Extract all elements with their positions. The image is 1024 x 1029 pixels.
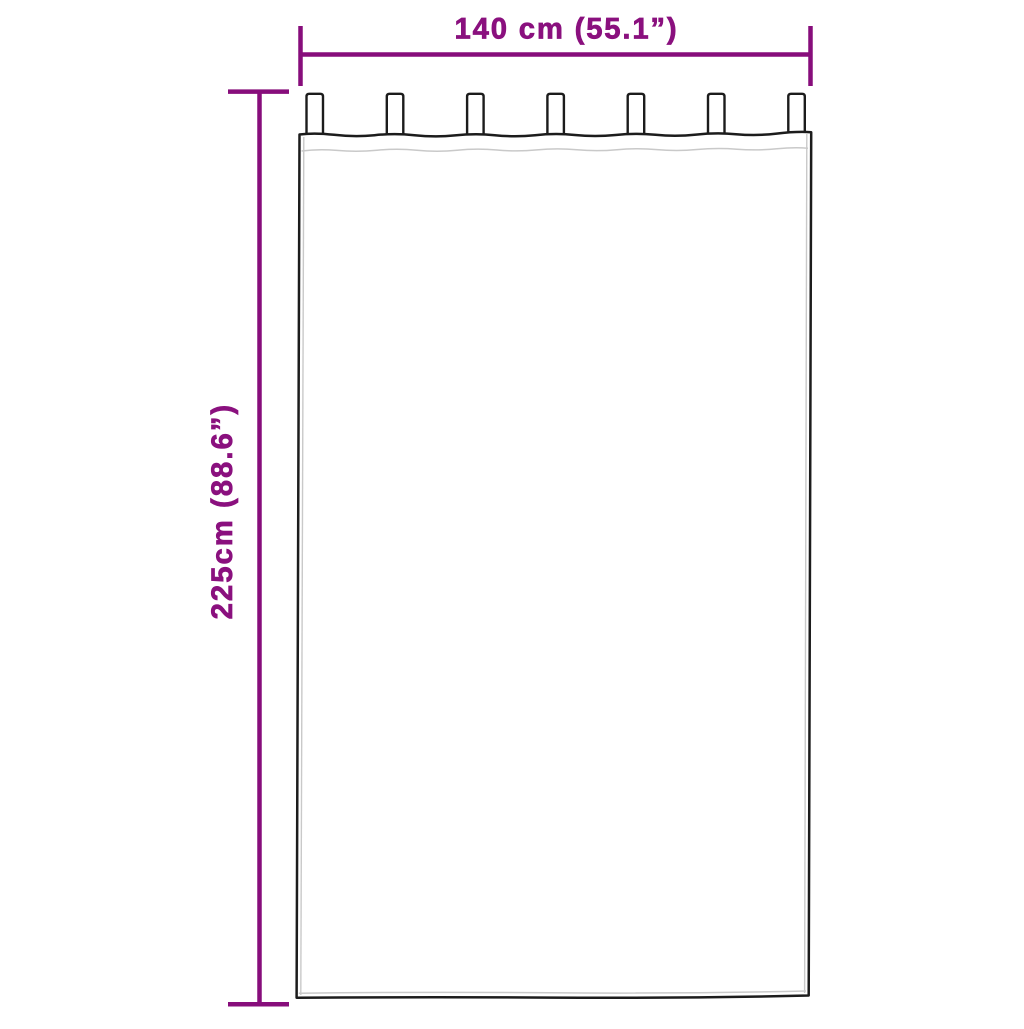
svg-text:140 cm (55.1”): 140 cm (55.1”) <box>455 13 679 46</box>
svg-text:225cm (88.6”): 225cm (88.6”) <box>206 403 239 620</box>
